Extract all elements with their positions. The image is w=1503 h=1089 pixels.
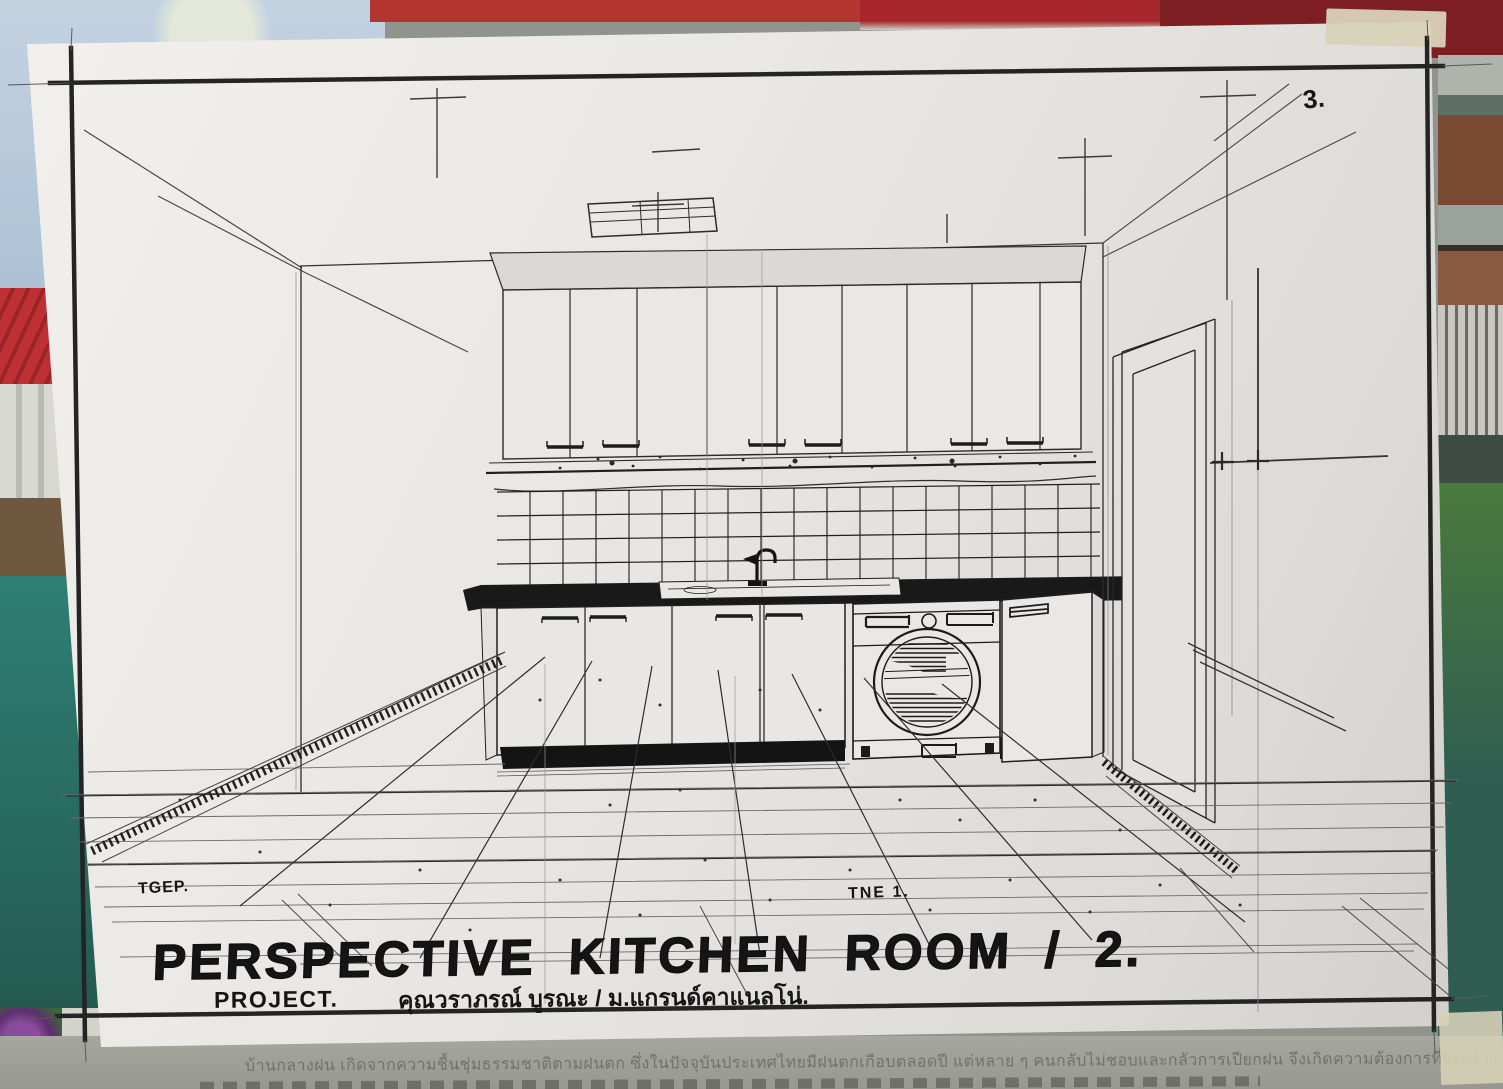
sheet-title: PERSPECTIVE KITCHEN ROOM / 2. bbox=[152, 921, 1144, 991]
floor-left-hatch-band bbox=[92, 660, 502, 851]
shelf-strip-wavy-edge bbox=[494, 476, 1096, 491]
shelf-strip-heavy-line bbox=[486, 462, 1096, 473]
base-cabinet-left-side bbox=[481, 608, 497, 760]
upper-cabinet-body bbox=[503, 282, 1081, 459]
tall-cabinet-side bbox=[1092, 592, 1104, 757]
right-wall-diagonal-marks bbox=[1188, 643, 1346, 731]
sketch-initials: TGEP. bbox=[138, 878, 190, 898]
right-wall-cross-marks bbox=[1212, 450, 1269, 470]
ceiling-left-diagonals bbox=[84, 130, 468, 352]
base-cabinet-body bbox=[497, 603, 845, 755]
tall-cabinet-body bbox=[1002, 592, 1092, 762]
shelf-strip-circles bbox=[612, 461, 952, 463]
backsplash-horizontal-lines bbox=[497, 484, 1100, 588]
ceiling-light-inner-lines bbox=[590, 199, 716, 235]
sketch-note: TNE 1. bbox=[848, 883, 910, 902]
project-label: PROJECT. bbox=[214, 986, 339, 1013]
project-value: คุณวราภรณ์ บูรณะ / ม.แกรนด์คาแนลโน่. bbox=[398, 982, 809, 1015]
door-face bbox=[1122, 323, 1206, 818]
masking-tape-bottom-right bbox=[1439, 1011, 1503, 1085]
right-wall-construction-dark bbox=[1210, 268, 1388, 463]
right-wall-construction-pencil bbox=[1232, 300, 1258, 1012]
page-number: 3. bbox=[1301, 83, 1326, 115]
photo-of-kitchen-perspective-sketch: บ้านกลางฝน เกิดจากความชื้นชุ่มธรรมชาติตา… bbox=[0, 0, 1503, 1089]
ceiling-light-fixture bbox=[588, 198, 717, 237]
